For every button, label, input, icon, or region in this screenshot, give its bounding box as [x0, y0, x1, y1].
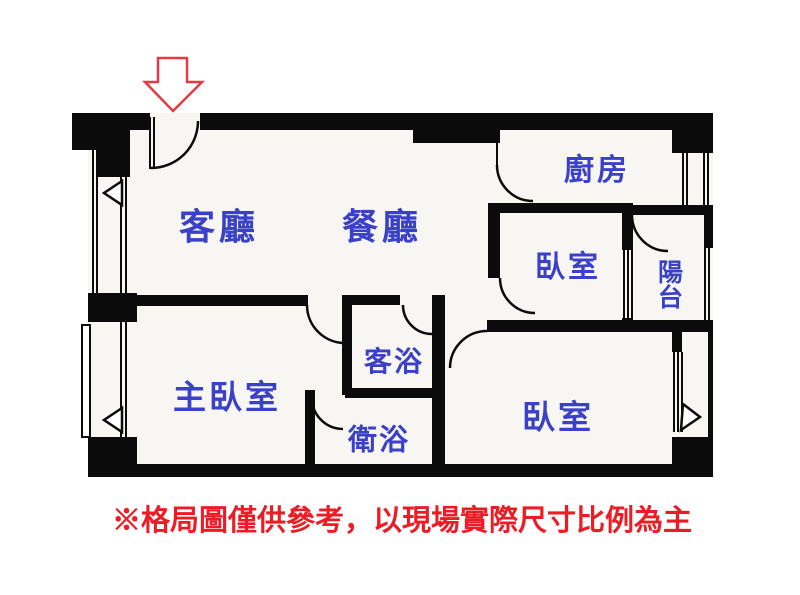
room-label-bathroom: 衛浴 [348, 427, 410, 456]
room-label-kitchen: 廚房 [564, 156, 630, 186]
floor-plan-page: 客廳 餐廳 廚房 臥室 陽台 客浴 衛浴 主臥室 臥室 ※格局圖僅供參考，以現場… [0, 0, 800, 595]
room-label-master-bedroom: 主臥室 [173, 381, 281, 414]
room-label-guest-bathroom: 客浴 [364, 348, 424, 376]
room-label-balcony: 陽台 [656, 259, 681, 309]
disclaimer-note: ※格局圖僅供參考，以現場實際尺寸比例為主 [112, 497, 692, 539]
room-label-living-room: 客廳 [179, 209, 259, 245]
room-label-dining-room: 餐廳 [342, 209, 422, 245]
room-label-bedroom-right: 臥室 [535, 253, 601, 283]
room-label-bedroom-bottom: 臥室 [522, 401, 594, 434]
entrance-arrow-icon [145, 58, 202, 111]
bay-window-sill [82, 325, 90, 437]
